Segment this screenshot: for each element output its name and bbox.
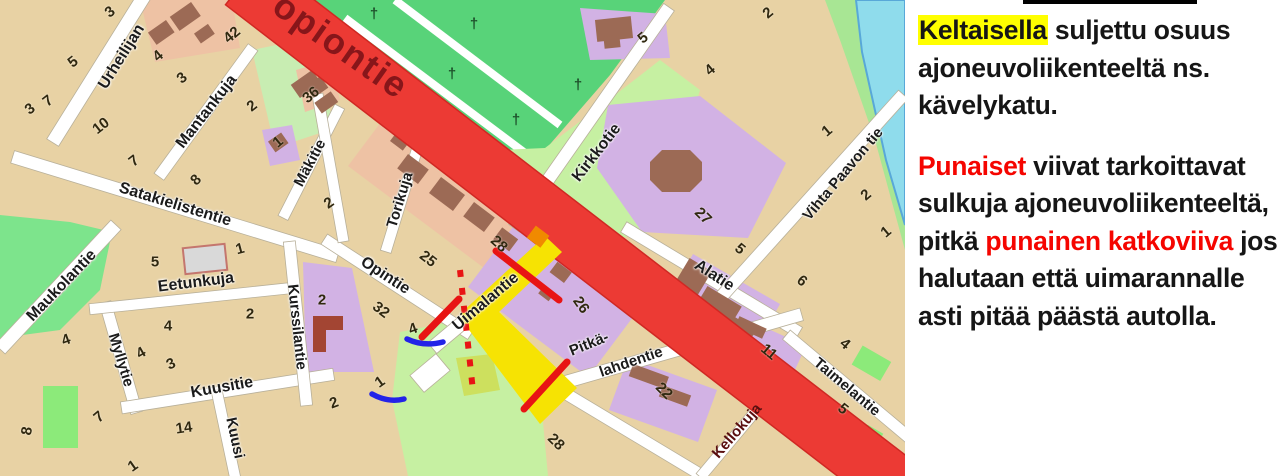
cemetery-cross-icon: † (448, 66, 456, 83)
cemetery-cross-icon: † (512, 112, 520, 129)
legend-line: sulkuja ajoneuvoliikenteeltä, (918, 185, 1274, 223)
legend-line: pitkä punainen katkoviiva jos (918, 223, 1274, 261)
legend-text-span: halutaan että uimarannalle (918, 263, 1245, 293)
legend-paragraph-yellow: Keltaisella suljettu osuusajoneuvoliiken… (918, 12, 1274, 125)
red-word: Punaiset (918, 151, 1026, 181)
legend-text-span: sulkuja ajoneuvoliikenteeltä, (918, 188, 1269, 218)
red-word: punainen katkoviiva (985, 226, 1233, 256)
legend-line: halutaan että uimarannalle (918, 260, 1274, 298)
screenshot-stage: opiontieUrheilijanMantankujaSatakieliste… (0, 0, 1281, 476)
legend-panel: Keltaisella suljettu osuusajoneuvoliiken… (905, 0, 1281, 476)
house-number: 2 (318, 292, 326, 309)
cropped-top-bar (1023, 0, 1197, 4)
legend-text: Keltaisella suljettu osuusajoneuvoliiken… (918, 12, 1274, 335)
legend-text-span: ajoneuvoliikenteeltä ns. (918, 53, 1210, 83)
street-map: opiontieUrheilijanMantankujaSatakieliste… (0, 0, 905, 476)
house-number: 2 (246, 306, 254, 323)
legend-text-span: jos (1233, 226, 1277, 256)
legend-line: asti pitää päästä autolla. (918, 298, 1274, 336)
legend-paragraph-red: Punaiset viivat tarkoittavatsulkuja ajon… (918, 148, 1274, 336)
house-number: 5 (151, 254, 159, 271)
highlighted-word: Keltaisella (918, 15, 1048, 45)
house-number: 4 (164, 318, 172, 335)
legend-text-span: suljettu osuus (1048, 15, 1231, 45)
legend-line: kävelykatu. (918, 87, 1274, 125)
legend-text-span: viivat tarkoittavat (1026, 151, 1245, 181)
legend-text-span: kävelykatu. (918, 90, 1058, 120)
legend-line: Keltaisella suljettu osuus (918, 12, 1274, 50)
house-number: 14 (175, 418, 194, 437)
school-building (183, 244, 227, 274)
cemetery-cross-icon: † (370, 6, 378, 23)
cemetery-cross-icon: † (574, 77, 582, 94)
legend-text-span: pitkä (918, 226, 985, 256)
legend-line: ajoneuvoliikenteeltä ns. (918, 50, 1274, 88)
legend-text-span: asti pitää päästä autolla. (918, 301, 1217, 331)
cemetery-cross-icon: † (470, 16, 478, 33)
legend-line: Punaiset viivat tarkoittavat (918, 148, 1274, 186)
